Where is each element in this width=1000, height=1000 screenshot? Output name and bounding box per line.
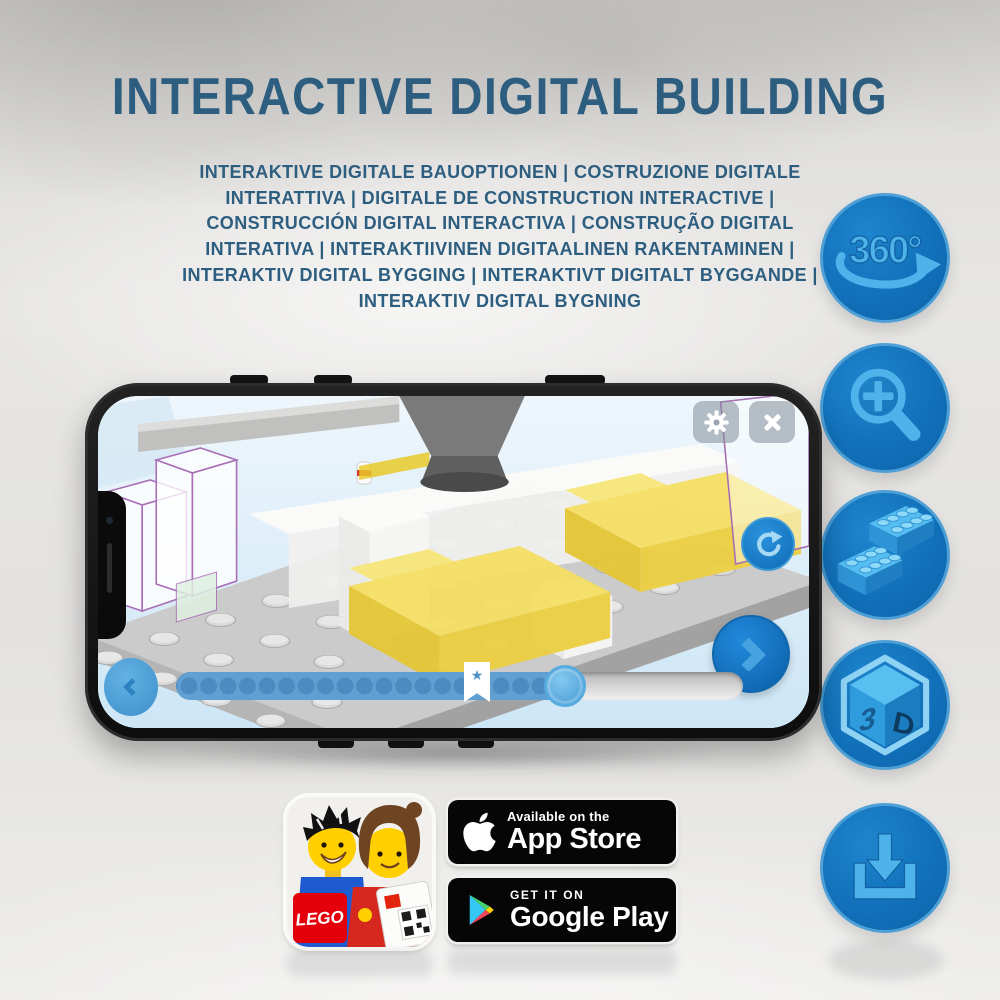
google-play-name: Google Play [510, 902, 669, 933]
circle-reflection [828, 940, 944, 980]
apple-logo-icon [463, 810, 496, 854]
rotate-view-button[interactable] [741, 517, 795, 571]
previous-step-button[interactable] [104, 658, 158, 716]
phone-mockup: ★ [85, 383, 822, 741]
download-icon [833, 816, 937, 920]
feature-badge-zoom [820, 343, 950, 473]
slider-thumb[interactable] [544, 665, 586, 707]
gear-icon [703, 409, 730, 436]
app-store-badge[interactable]: Available on the App Store [448, 800, 676, 864]
feature-badge-3d: 3 D [820, 640, 950, 770]
360-rotation-icon: 360° [827, 200, 943, 316]
feature-badge-download [820, 803, 950, 933]
feature-badge-360: 360° [820, 193, 950, 323]
app-store-tagline: Available on the [507, 809, 641, 824]
close-button[interactable] [749, 401, 795, 443]
feature-badge-brick [820, 490, 950, 620]
google-play-icon [463, 890, 499, 930]
build-progress-slider[interactable]: ★ [176, 672, 743, 700]
badge-reflection [448, 948, 676, 974]
svg-text:D: D [893, 705, 915, 744]
multilingual-subtitle: INTERAKTIVE DIGITALE BAUOPTIONEN | COSTR… [150, 160, 850, 314]
slider-progress-fill [176, 672, 572, 700]
svg-text:360°: 360° [849, 230, 921, 272]
lego-brick-icon [829, 499, 941, 611]
star-icon: ★ [471, 668, 484, 682]
3d-cube-icon: 3 D [829, 649, 941, 761]
page-title: INTERACTIVE DIGITAL BUILDING [0, 66, 1000, 126]
lego-app-icon[interactable]: LEGO [287, 797, 432, 947]
svg-text:3: 3 [859, 702, 876, 739]
app-store-name: App Store [507, 824, 641, 854]
google-play-badge[interactable]: GET IT ON Google Play [448, 878, 676, 942]
camera-icon [106, 517, 113, 524]
chevron-right-icon [734, 637, 768, 671]
phone-notch [98, 491, 126, 639]
rotate-icon [753, 529, 783, 559]
promo-image: INTERACTIVE DIGITAL BUILDING INTERAKTIVE… [0, 0, 1000, 1000]
phone-reflection [95, 748, 815, 776]
chevron-left-icon [120, 676, 142, 698]
close-icon [760, 410, 785, 435]
app-screen: ★ [98, 396, 809, 728]
zoom-in-icon [831, 354, 939, 462]
speaker-slit [107, 543, 112, 593]
google-play-tagline: GET IT ON [510, 888, 669, 902]
icon-reflection [287, 952, 432, 976]
lego-minifigures-illustration: LEGO [287, 797, 432, 947]
svg-text:LEGO: LEGO [295, 907, 344, 929]
settings-button[interactable] [693, 401, 739, 443]
screen-toolbar [693, 401, 795, 443]
